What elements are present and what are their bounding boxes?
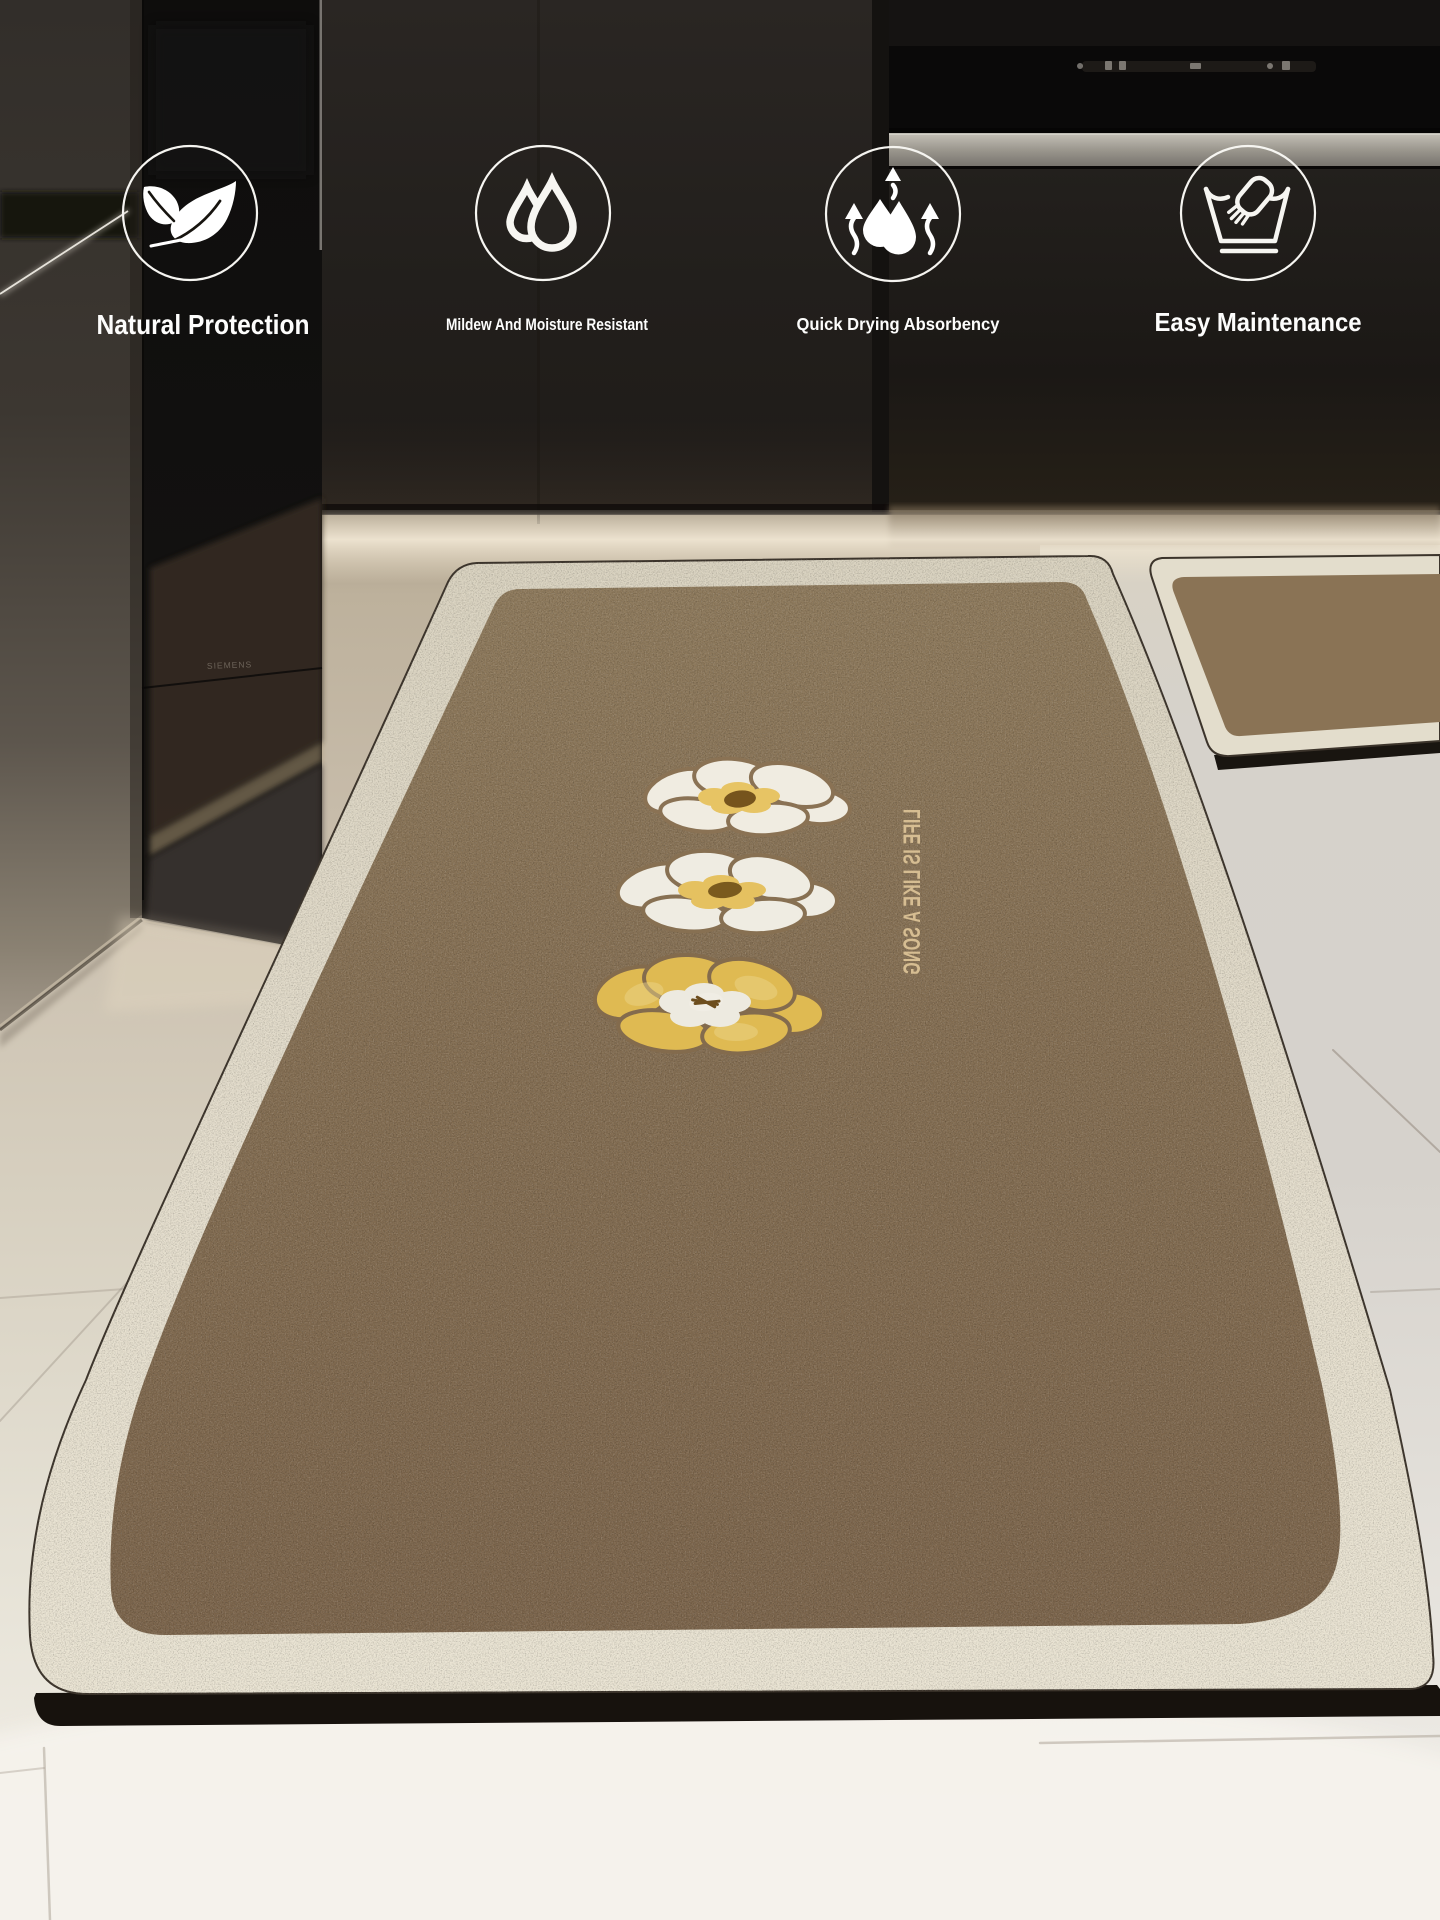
svg-text:Mildew And Moisture Resistant: Mildew And Moisture Resistant [446,315,648,334]
svg-text:Easy Maintenance: Easy Maintenance [1155,307,1362,337]
svg-text:Natural Protection: Natural Protection [97,309,310,340]
svg-text:SIEMENS: SIEMENS [207,659,253,671]
svg-text:LIFE IS LIKE A SONG: LIFE IS LIKE A SONG [899,809,926,975]
svg-text:Quick Drying Absorbency: Quick Drying Absorbency [797,314,1000,334]
